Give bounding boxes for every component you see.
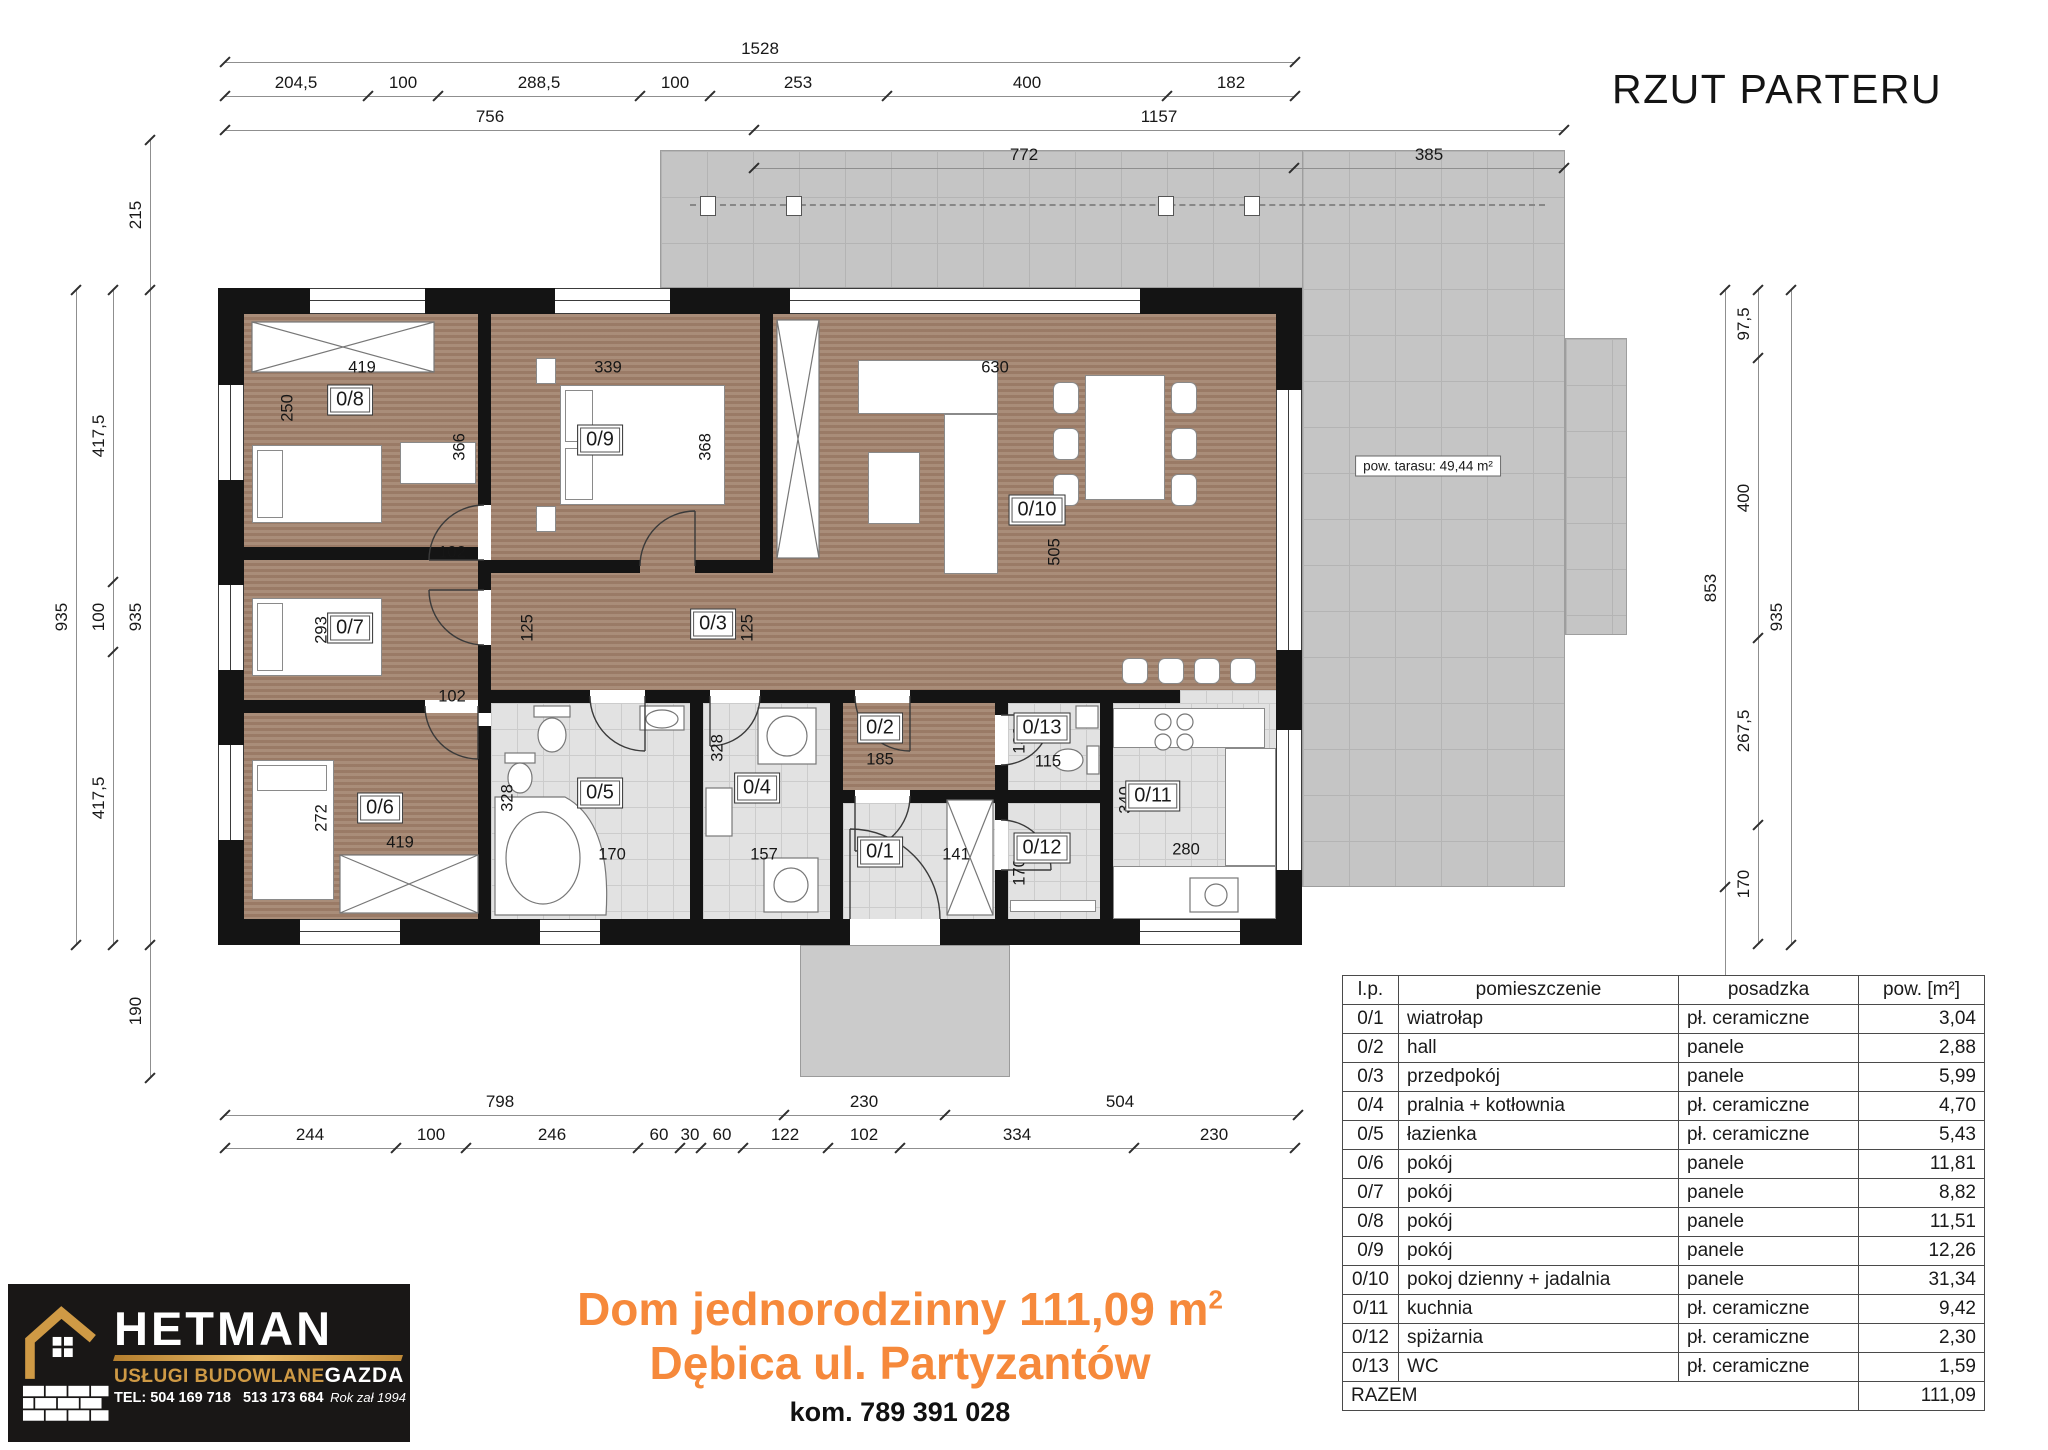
toilet-tank-icon <box>1087 746 1099 774</box>
room-label: 0/13 <box>1014 713 1071 744</box>
logo-tagline: USŁUGI BUDOWLANE <box>114 1366 325 1388</box>
table-cell: wiatrołap <box>1399 1005 1679 1034</box>
dimension-label: 1528 <box>741 39 779 59</box>
logo-established: Rok zał 1994 <box>330 1390 406 1405</box>
table-row: 0/6pokójpanele11,81 <box>1343 1150 1985 1179</box>
dimension-label: 853 <box>1701 574 1721 602</box>
water-heater-icon <box>767 716 807 756</box>
dimension-label: 60 <box>713 1125 732 1145</box>
toilet-icon <box>538 718 566 752</box>
dimension-label: 400 <box>1013 73 1041 93</box>
logo-phone-1: TEL: 504 169 718 <box>114 1390 231 1406</box>
project-title: Dom jednorodzinny 111,09 m2 <box>420 1282 1380 1336</box>
room-label: 0/6 <box>357 793 403 824</box>
dimension-label: 339 <box>594 359 622 378</box>
table-cell: pł. ceramiczne <box>1679 1121 1859 1150</box>
dimension-label: 935 <box>52 603 72 631</box>
table-row: 0/3przedpokójpanele5,99 <box>1343 1063 1985 1092</box>
dimension-line <box>225 1115 1298 1116</box>
room-area-table: l.p.pomieszczenieposadzkapow. [m²]0/1wia… <box>1342 975 1985 1411</box>
dimension-label: 100 <box>89 603 109 631</box>
dimension-label: 400 <box>1734 484 1754 512</box>
dimension-line <box>150 140 151 1078</box>
table-cell: panele <box>1679 1179 1859 1208</box>
table-cell: 8,82 <box>1859 1179 1985 1208</box>
dimension-label: 100 <box>389 73 417 93</box>
door-arc <box>425 706 478 759</box>
dimension-label: 97,5 <box>1734 307 1754 340</box>
dimension-label: 30 <box>681 1125 700 1145</box>
project-address: Dębica ul. Partyzantów <box>420 1336 1380 1390</box>
dimension-label: 419 <box>386 834 414 853</box>
table-cell: WC <box>1399 1353 1679 1382</box>
room-label: 0/4 <box>734 773 780 804</box>
table-total-row: RAZEM111,09 <box>1343 1382 1985 1411</box>
table-cell: 0/3 <box>1343 1063 1399 1092</box>
table-cell: pralnia + kotłownia <box>1399 1092 1679 1121</box>
square-meter-sup: 2 <box>1208 1285 1222 1315</box>
laundry-sink-icon <box>706 788 732 836</box>
door-arc <box>590 696 645 751</box>
table-cell: 5,99 <box>1859 1063 1985 1092</box>
table-cell: 2,88 <box>1859 1034 1985 1063</box>
dimension-label: 182 <box>1217 73 1245 93</box>
dimension-line <box>225 96 1295 97</box>
dimension-label: 1157 <box>1141 107 1178 127</box>
table-cell: przedpokój <box>1399 1063 1679 1092</box>
dimension-line <box>1791 290 1792 945</box>
room-label: 0/1 <box>857 837 903 868</box>
dimension-label: 157 <box>750 846 778 865</box>
dimension-label: 102 <box>438 688 466 707</box>
dimension-label: 328 <box>499 784 518 812</box>
logo-house-icon <box>16 1292 112 1436</box>
table-row: 0/13WCpł. ceramiczne1,59 <box>1343 1353 1985 1382</box>
project-phone: kom. 789 391 028 <box>420 1397 1380 1428</box>
room-label: 0/12 <box>1014 833 1071 864</box>
table-row: 0/1wiatrołappł. ceramiczne3,04 <box>1343 1005 1985 1034</box>
washing-machine-drum-icon <box>774 868 808 902</box>
dimension-line <box>113 290 114 945</box>
dimension-label: 334 <box>1003 1125 1031 1145</box>
bathtub-basin-icon <box>506 812 580 904</box>
company-logo: HETMAN USŁUGI BUDOWLANE GAZDA TEL: 504 1… <box>8 1284 410 1442</box>
table-cell: pokój <box>1399 1150 1679 1179</box>
table-cell: panele <box>1679 1266 1859 1295</box>
dimension-label: 756 <box>476 107 504 127</box>
table-cell: panele <box>1679 1034 1859 1063</box>
table-cell: 0/8 <box>1343 1208 1399 1237</box>
table-cell: 0/7 <box>1343 1179 1399 1208</box>
dimension-label: 267,5 <box>1734 710 1754 753</box>
dimension-label: 246 <box>538 1125 566 1145</box>
table-cell: łazienka <box>1399 1121 1679 1150</box>
table-cell: 11,81 <box>1859 1150 1985 1179</box>
table-header: l.p. <box>1343 976 1399 1005</box>
bidet-tank-icon <box>505 753 535 763</box>
cooktop-burner-icon <box>1155 714 1171 730</box>
dimension-label: 60 <box>650 1125 669 1145</box>
dimension-label: 102 <box>850 1125 878 1145</box>
table-cell: pł. ceramiczne <box>1679 1092 1859 1121</box>
table-cell: panele <box>1679 1150 1859 1179</box>
table-cell: 3,04 <box>1859 1005 1985 1034</box>
cooktop-burner-icon <box>1177 714 1193 730</box>
table-cell: panele <box>1679 1063 1859 1092</box>
logo-phone-2: 513 173 684 <box>243 1390 324 1406</box>
dimension-label: 368 <box>697 433 716 461</box>
table-cell: 1,59 <box>1859 1353 1985 1382</box>
table-cell: spiżarnia <box>1399 1324 1679 1353</box>
dimension-label: 505 <box>1046 538 1065 566</box>
dimension-line <box>76 290 77 945</box>
dimension-label: 230 <box>1200 1125 1228 1145</box>
dimension-label: 385 <box>1415 145 1443 165</box>
dimension-label: 115 <box>1035 753 1061 772</box>
table-cell: 0/5 <box>1343 1121 1399 1150</box>
dimension-label: 253 <box>784 73 812 93</box>
table-cell: hall <box>1399 1034 1679 1063</box>
dimension-label: 125 <box>739 614 758 642</box>
table-cell: 11,51 <box>1859 1208 1985 1237</box>
table-cell: pł. ceramiczne <box>1679 1353 1859 1382</box>
table-row: 0/7pokójpanele8,82 <box>1343 1179 1985 1208</box>
table-cell: panele <box>1679 1208 1859 1237</box>
dimension-label: 100 <box>661 73 689 93</box>
dimension-label: 328 <box>709 734 728 762</box>
room-label: 0/2 <box>857 713 903 744</box>
dimension-label: 417,5 <box>89 777 109 820</box>
door-arc <box>429 590 484 645</box>
dimension-label: 272 <box>313 804 332 832</box>
sink-icon <box>1076 706 1098 728</box>
room-label: 0/3 <box>690 609 736 640</box>
table-cell: pł. ceramiczne <box>1679 1295 1859 1324</box>
dimension-label: 190 <box>126 997 146 1025</box>
dimension-label: 170 <box>1734 870 1754 898</box>
table-row: 0/11kuchniapł. ceramiczne9,42 <box>1343 1295 1985 1324</box>
logo-phones: TEL: 504 169 718 513 173 684 <box>114 1390 324 1406</box>
cooktop-burner-icon <box>1155 734 1171 750</box>
table-header-row: l.p.pomieszczenieposadzkapow. [m²] <box>1343 976 1985 1005</box>
table-cell: pł. ceramiczne <box>1679 1005 1859 1034</box>
table-header: pow. [m²] <box>1859 976 1985 1005</box>
dimension-label: 102 <box>438 544 466 563</box>
table-cell: 0/1 <box>1343 1005 1399 1034</box>
project-title-text: Dom jednorodzinny 111,09 m <box>577 1283 1208 1335</box>
table-cell: 5,43 <box>1859 1121 1985 1150</box>
table-cell: 9,42 <box>1859 1295 1985 1324</box>
table-cell: panele <box>1679 1237 1859 1266</box>
project-caption: Dom jednorodzinny 111,09 m2 Dębica ul. P… <box>420 1282 1380 1428</box>
room-label: 0/11 <box>1125 781 1180 812</box>
dimension-label: 125 <box>519 614 538 642</box>
dimension-label: 935 <box>1767 603 1787 631</box>
room-label: 0/7 <box>327 613 373 644</box>
cooktop-burner-icon <box>1177 734 1193 750</box>
dimension-label: 935 <box>126 603 146 631</box>
door-arc <box>640 511 695 566</box>
dimension-label: 185 <box>866 751 894 770</box>
table-total-label: RAZEM <box>1343 1382 1859 1411</box>
table-cell: 0/4 <box>1343 1092 1399 1121</box>
dimension-label: 204,5 <box>275 73 318 93</box>
room-label: 0/10 <box>1009 495 1066 526</box>
toilet-tank-icon <box>534 706 570 717</box>
table-row: 0/12spiżarniapł. ceramiczne2,30 <box>1343 1324 1985 1353</box>
house-window-icon <box>53 1337 73 1357</box>
house-outline-icon <box>30 1313 93 1379</box>
floor-plan-sheet: RZUT PARTERU pow. tarasu: 49,44 m² <box>0 0 2048 1450</box>
table-total-value: 111,09 <box>1859 1382 1985 1411</box>
logo-gold-bar <box>113 1355 403 1361</box>
table-cell: pokoj dzienny + jadalnia <box>1399 1266 1679 1295</box>
dimension-label: 798 <box>486 1092 514 1112</box>
dimension-label: 122 <box>771 1125 799 1145</box>
table-cell: 0/9 <box>1343 1237 1399 1266</box>
table-cell: 0/2 <box>1343 1034 1399 1063</box>
dimension-label: 417,5 <box>89 415 109 458</box>
dimension-label: 280 <box>1172 841 1200 860</box>
table-cell: 12,26 <box>1859 1237 1985 1266</box>
terrace-area-label: pow. tarasu: 49,44 m² <box>1355 456 1501 477</box>
dimension-label: 366 <box>451 433 470 461</box>
dimension-label: 504 <box>1106 1092 1134 1112</box>
table-row: 0/4pralnia + kotłowniapł. ceramiczne4,70 <box>1343 1092 1985 1121</box>
table-cell: pokój <box>1399 1179 1679 1208</box>
dimension-label: 170 <box>598 846 626 865</box>
dimension-line <box>754 168 1564 169</box>
room-label: 0/9 <box>577 425 623 456</box>
brick-wall-icon <box>23 1386 109 1421</box>
dimension-label: 244 <box>296 1125 324 1145</box>
table-row: 0/9pokójpanele12,26 <box>1343 1237 1985 1266</box>
table-cell: 4,70 <box>1859 1092 1985 1121</box>
table-row: 0/2hallpanele2,88 <box>1343 1034 1985 1063</box>
dimension-label: 630 <box>981 359 1009 378</box>
dimension-line <box>1758 290 1759 944</box>
dimension-label: 772 <box>1010 145 1038 165</box>
table-cell: pokój <box>1399 1208 1679 1237</box>
table-cell: kuchnia <box>1399 1295 1679 1324</box>
dimension-line <box>225 62 1295 63</box>
dimension-label: 100 <box>417 1125 445 1145</box>
table-cell: pokój <box>1399 1237 1679 1266</box>
kitchen-sink-basin-icon <box>1205 884 1227 906</box>
table-cell: 2,30 <box>1859 1324 1985 1353</box>
dimension-line <box>225 130 1564 131</box>
dimension-label: 288,5 <box>518 73 561 93</box>
dimension-label: 215 <box>126 201 146 229</box>
table-row: 0/5łazienkapł. ceramiczne5,43 <box>1343 1121 1985 1150</box>
logo-company: GAZDA <box>325 1364 405 1388</box>
dimension-label: 141 <box>942 846 970 865</box>
room-label: 0/5 <box>577 778 623 809</box>
sink-basin-icon <box>646 710 678 728</box>
table-header: posadzka <box>1679 976 1859 1005</box>
table-cell: 31,34 <box>1859 1266 1985 1295</box>
dimension-label: 230 <box>850 1092 878 1112</box>
table-header: pomieszczenie <box>1399 976 1679 1005</box>
table-cell: pł. ceramiczne <box>1679 1324 1859 1353</box>
room-label: 0/8 <box>327 385 373 416</box>
table-cell: 0/6 <box>1343 1150 1399 1179</box>
table-row: 0/10pokoj dzienny + jadalniapanele31,34 <box>1343 1266 1985 1295</box>
table-row: 0/8pokójpanele11,51 <box>1343 1208 1985 1237</box>
dimension-label: 419 <box>348 359 376 378</box>
dimension-label: 250 <box>279 394 298 422</box>
logo-brand: HETMAN <box>114 1304 333 1353</box>
